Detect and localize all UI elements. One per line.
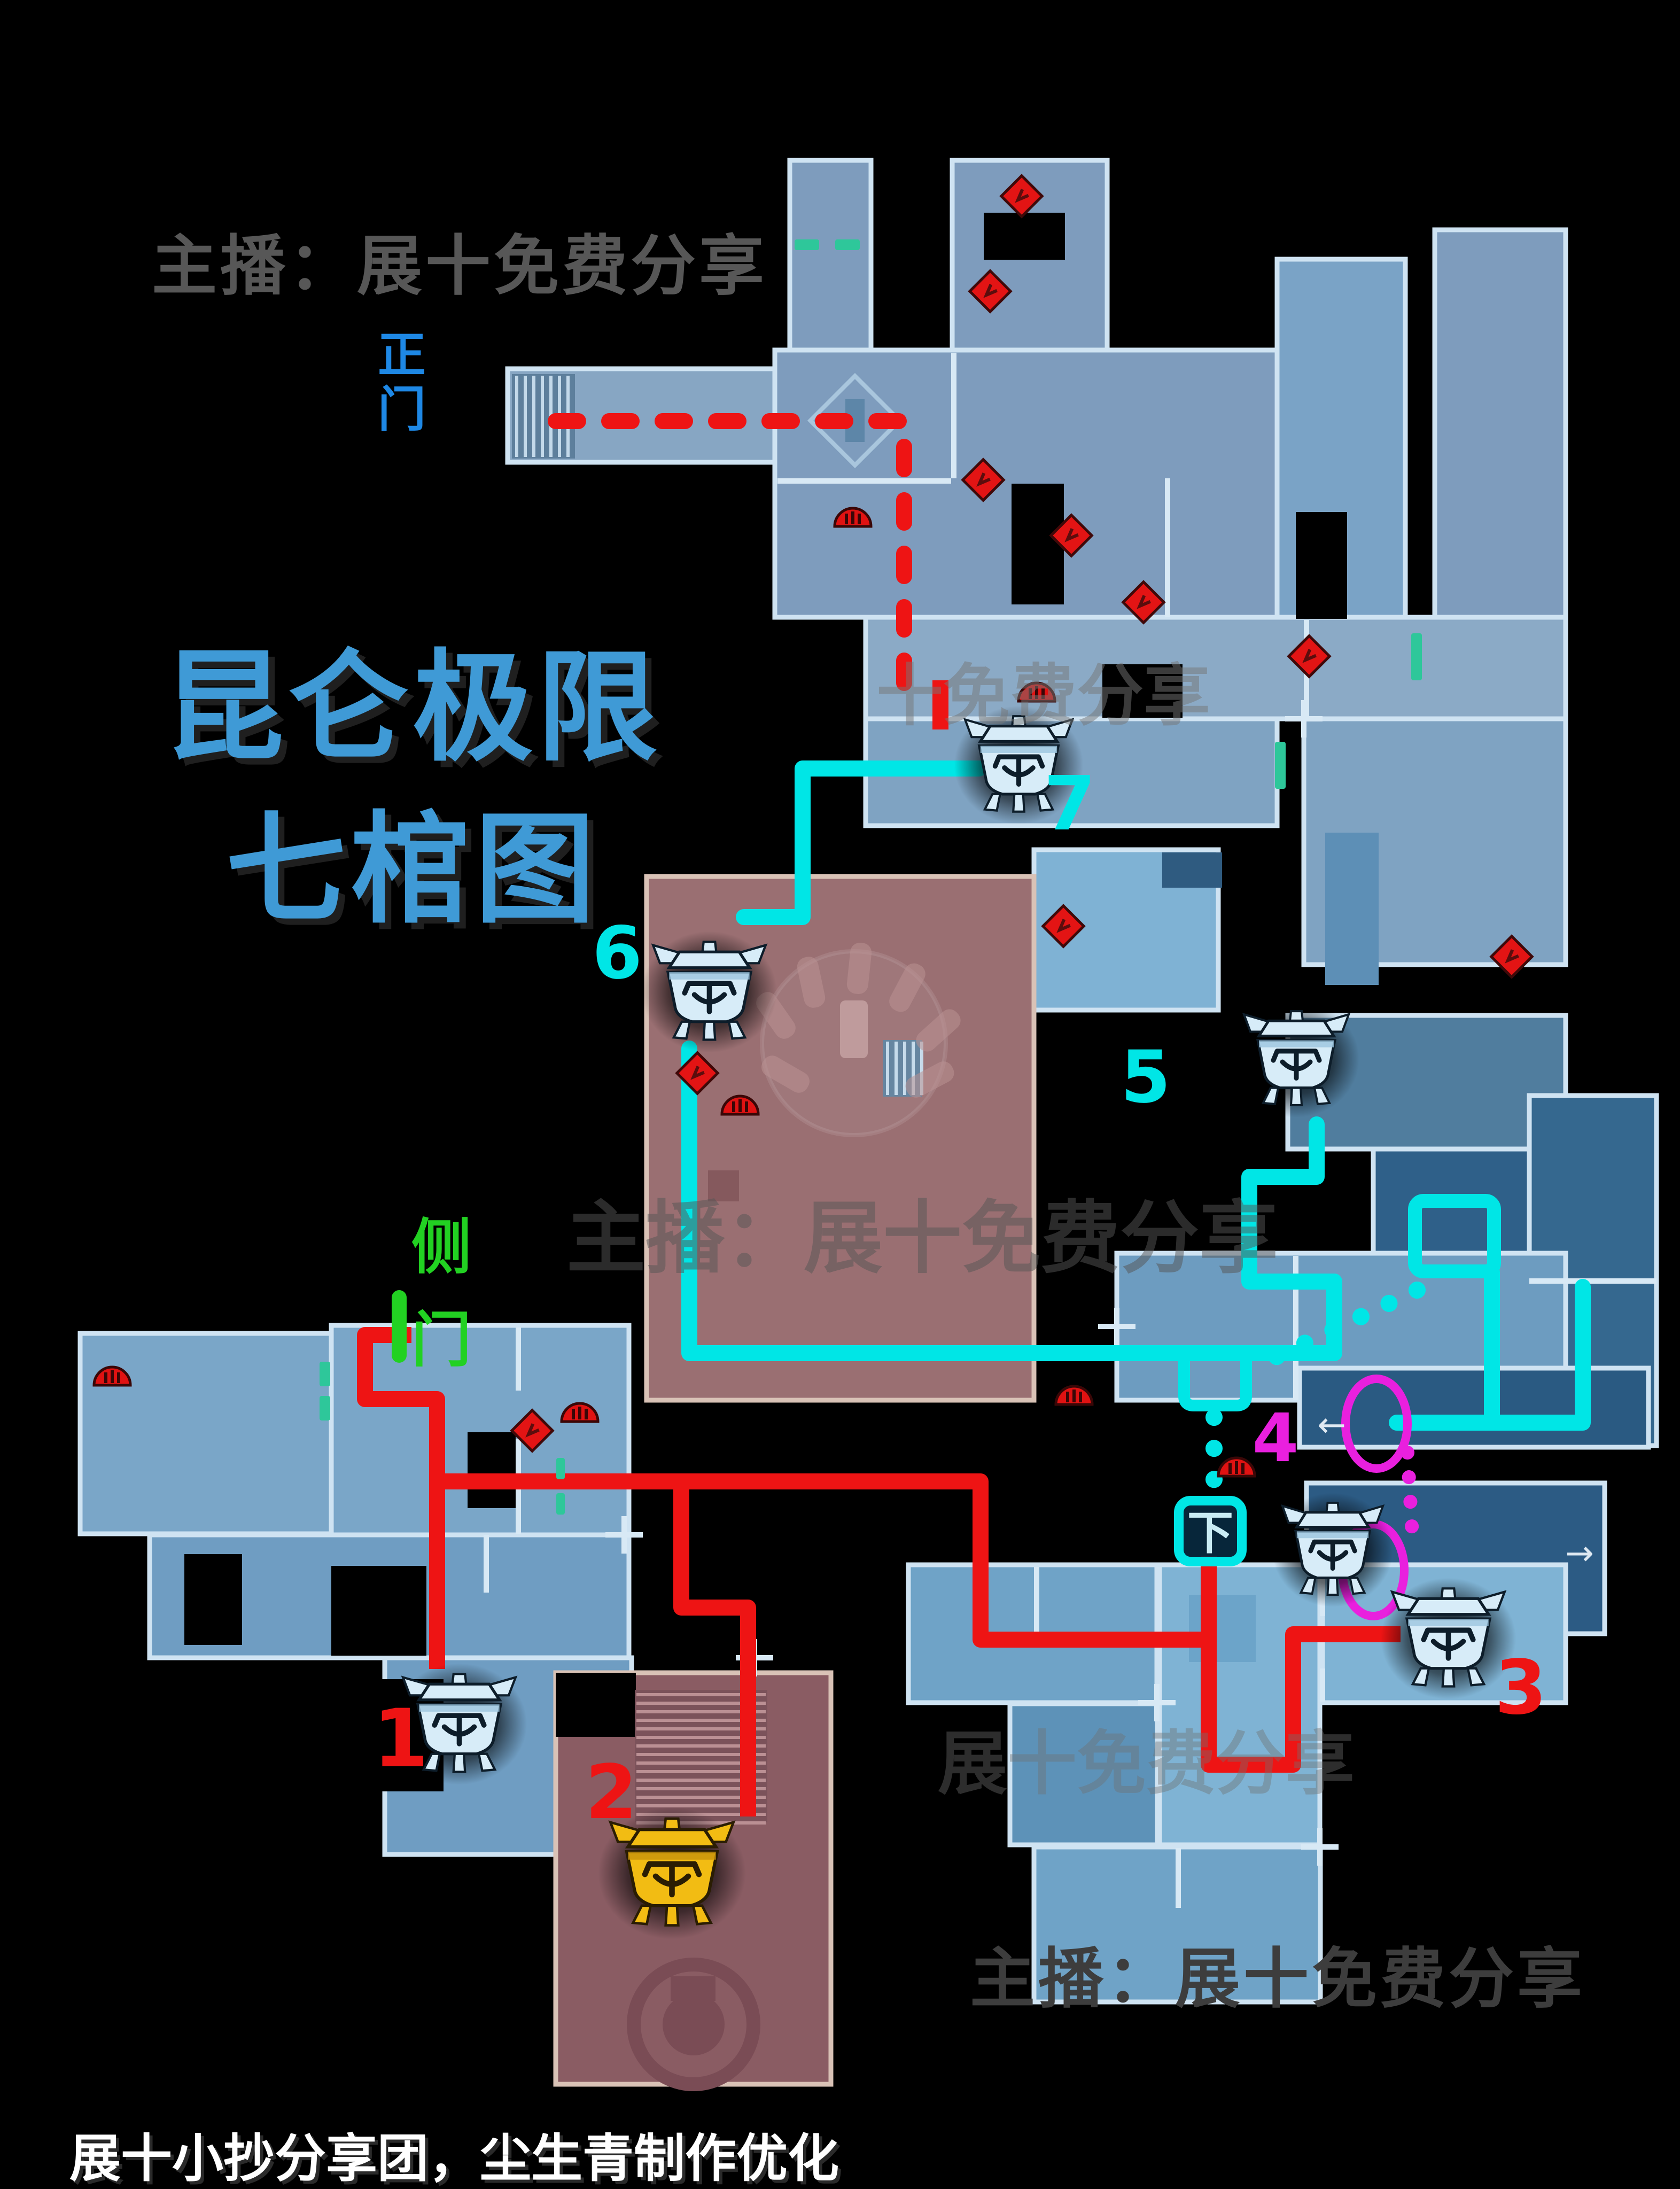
ritual-circle-core [663,1993,725,2055]
room-inset [1162,852,1222,888]
door-chip-icon [1411,633,1422,680]
streamer-watermark-top: 主播：展十免费分享 [152,228,767,304]
stairs-step [524,376,527,457]
wall-partition [1176,1848,1181,1908]
down-box-label: 下 [1187,1507,1233,1560]
main-gate-label-char: 正 [378,327,426,383]
wall-tick [1114,1308,1119,1345]
wall-partition [777,478,951,484]
floor-hole [984,213,1065,260]
wall-tick [1301,700,1306,738]
faint-watermark-lower: 展十免费分享 [938,1723,1355,1804]
side-gate-label-char: 侧 [411,1213,471,1282]
room [790,160,871,357]
wall-partition [1529,1278,1656,1284]
arrow-right-icon: → [1565,1534,1594,1573]
wall-tick [1317,1828,1323,1866]
door-chip-icon [795,239,819,250]
chest-label-5: 5 [1121,1035,1171,1119]
door-chip-icon [835,239,860,250]
chest-5-icon [1233,1001,1359,1117]
chest-label-7: 7 [1044,760,1095,848]
door-chip-icon [556,1493,565,1515]
game-map-guide: 下←→1234567主播：展十免费分享主播：展十免费分享十免费分享主播：展十免费… [0,0,1680,2189]
wall-partition [1165,478,1170,617]
arrow-left-icon: ← [1317,1406,1346,1445]
map-title-line2: 七棺图 [226,800,600,940]
floor-hole [184,1554,242,1645]
wall-tick [621,1516,627,1554]
door-chip-icon [320,1362,330,1386]
chest-label-2: 2 [585,1749,637,1836]
faint-watermark-upper: 十免费分享 [876,657,1210,735]
room [1300,1368,1648,1447]
main-gate-label-char: 门 [378,382,426,438]
wall-partition [1320,1668,1325,1702]
wall-partition [1034,1567,1039,1634]
floor-hole [331,1566,426,1656]
chest-4-icon [1272,1493,1394,1607]
stairs-step [532,376,535,457]
stairs-step [515,376,518,457]
floor-hole [1296,512,1347,619]
room [1435,230,1566,617]
temple-altar [840,1000,868,1058]
floor-hole [468,1432,516,1508]
chest-label-3: 3 [1495,1644,1546,1732]
side-door-icon [392,1290,407,1363]
door-chip-icon [320,1396,330,1420]
wall-tick [1154,1684,1160,1721]
map-svg: 下←→1234567主播：展十免费分享主播：展十免费分享十免费分享主播：展十免费… [0,0,1680,2189]
room-inset [1189,1595,1256,1662]
chest-6-icon [642,931,777,1052]
wall-partition [484,1535,489,1593]
floor-hole [1012,484,1064,604]
stairs-step [541,376,544,457]
wall-partition [951,353,956,478]
door-chip-icon [1275,742,1286,789]
floor-hole [556,1673,636,1737]
door-chip-icon [556,1458,565,1479]
map-title-line1: 昆仑极限 [164,638,662,778]
credit-line: 展十小抄分享团，尘生青制作优化 [69,2129,839,2188]
chest-label-1: 1 [373,1693,429,1786]
ritual-slab [671,1976,715,2001]
streamer-watermark-bottom: 主播：展十免费分享 [970,1941,1585,2017]
chest-label-4: 4 [1253,1400,1299,1477]
room-inset [1325,833,1379,985]
side-gate-label-char: 门 [411,1306,471,1375]
room [80,1333,331,1534]
faint-watermark-middle: 主播：展十免费分享 [566,1192,1278,1284]
wall-partition [516,1328,521,1391]
